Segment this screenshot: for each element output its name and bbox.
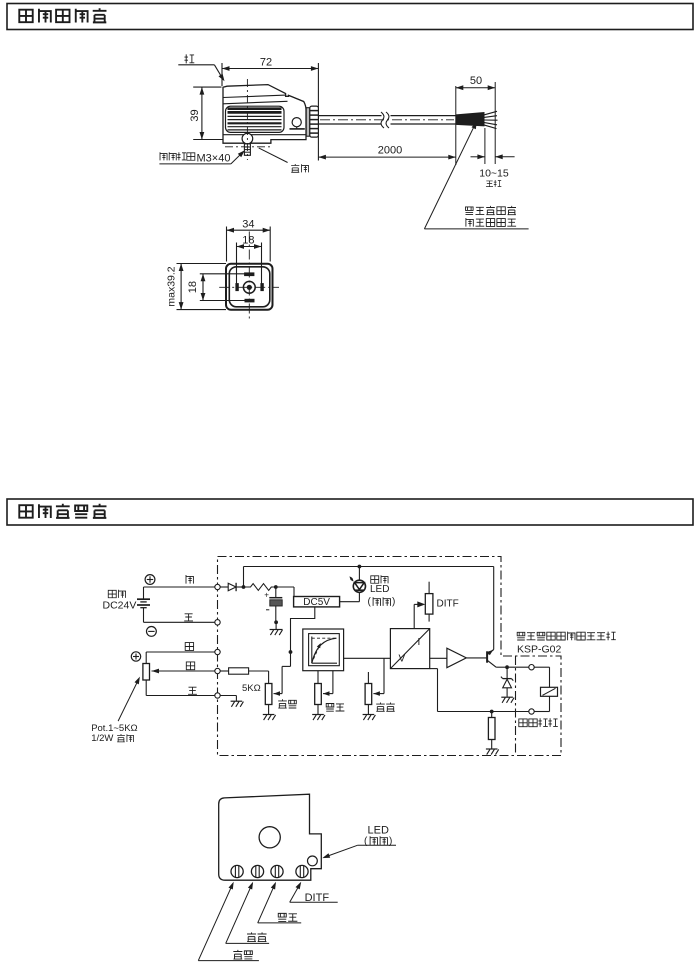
svg-text:(: (	[368, 597, 372, 608]
svg-text:50: 50	[470, 75, 482, 87]
svg-text:LED: LED	[368, 824, 389, 836]
svg-text:5KΩ: 5KΩ	[242, 683, 261, 694]
svg-text:10~15: 10~15	[479, 167, 509, 179]
svg-text:DC5V: DC5V	[303, 597, 330, 608]
svg-text:I: I	[418, 637, 421, 648]
svg-text:2000: 2000	[378, 144, 402, 156]
svg-text:V: V	[399, 654, 406, 665]
svg-text:DITF: DITF	[437, 599, 459, 610]
svg-text:max39.2: max39.2	[165, 266, 177, 306]
svg-text:LED: LED	[370, 584, 389, 595]
svg-text:): )	[392, 597, 395, 608]
svg-text:18: 18	[242, 235, 254, 247]
svg-text:34: 34	[242, 218, 254, 230]
svg-text:M3×40: M3×40	[197, 153, 231, 165]
svg-text:18: 18	[187, 281, 199, 293]
svg-text:72: 72	[260, 57, 272, 69]
svg-text:DC24V: DC24V	[103, 599, 137, 611]
svg-text:1/2W: 1/2W	[91, 733, 113, 744]
svg-text:+: +	[264, 591, 269, 600]
svg-text:KSP-G02: KSP-G02	[517, 643, 562, 655]
svg-text:39: 39	[189, 109, 201, 121]
